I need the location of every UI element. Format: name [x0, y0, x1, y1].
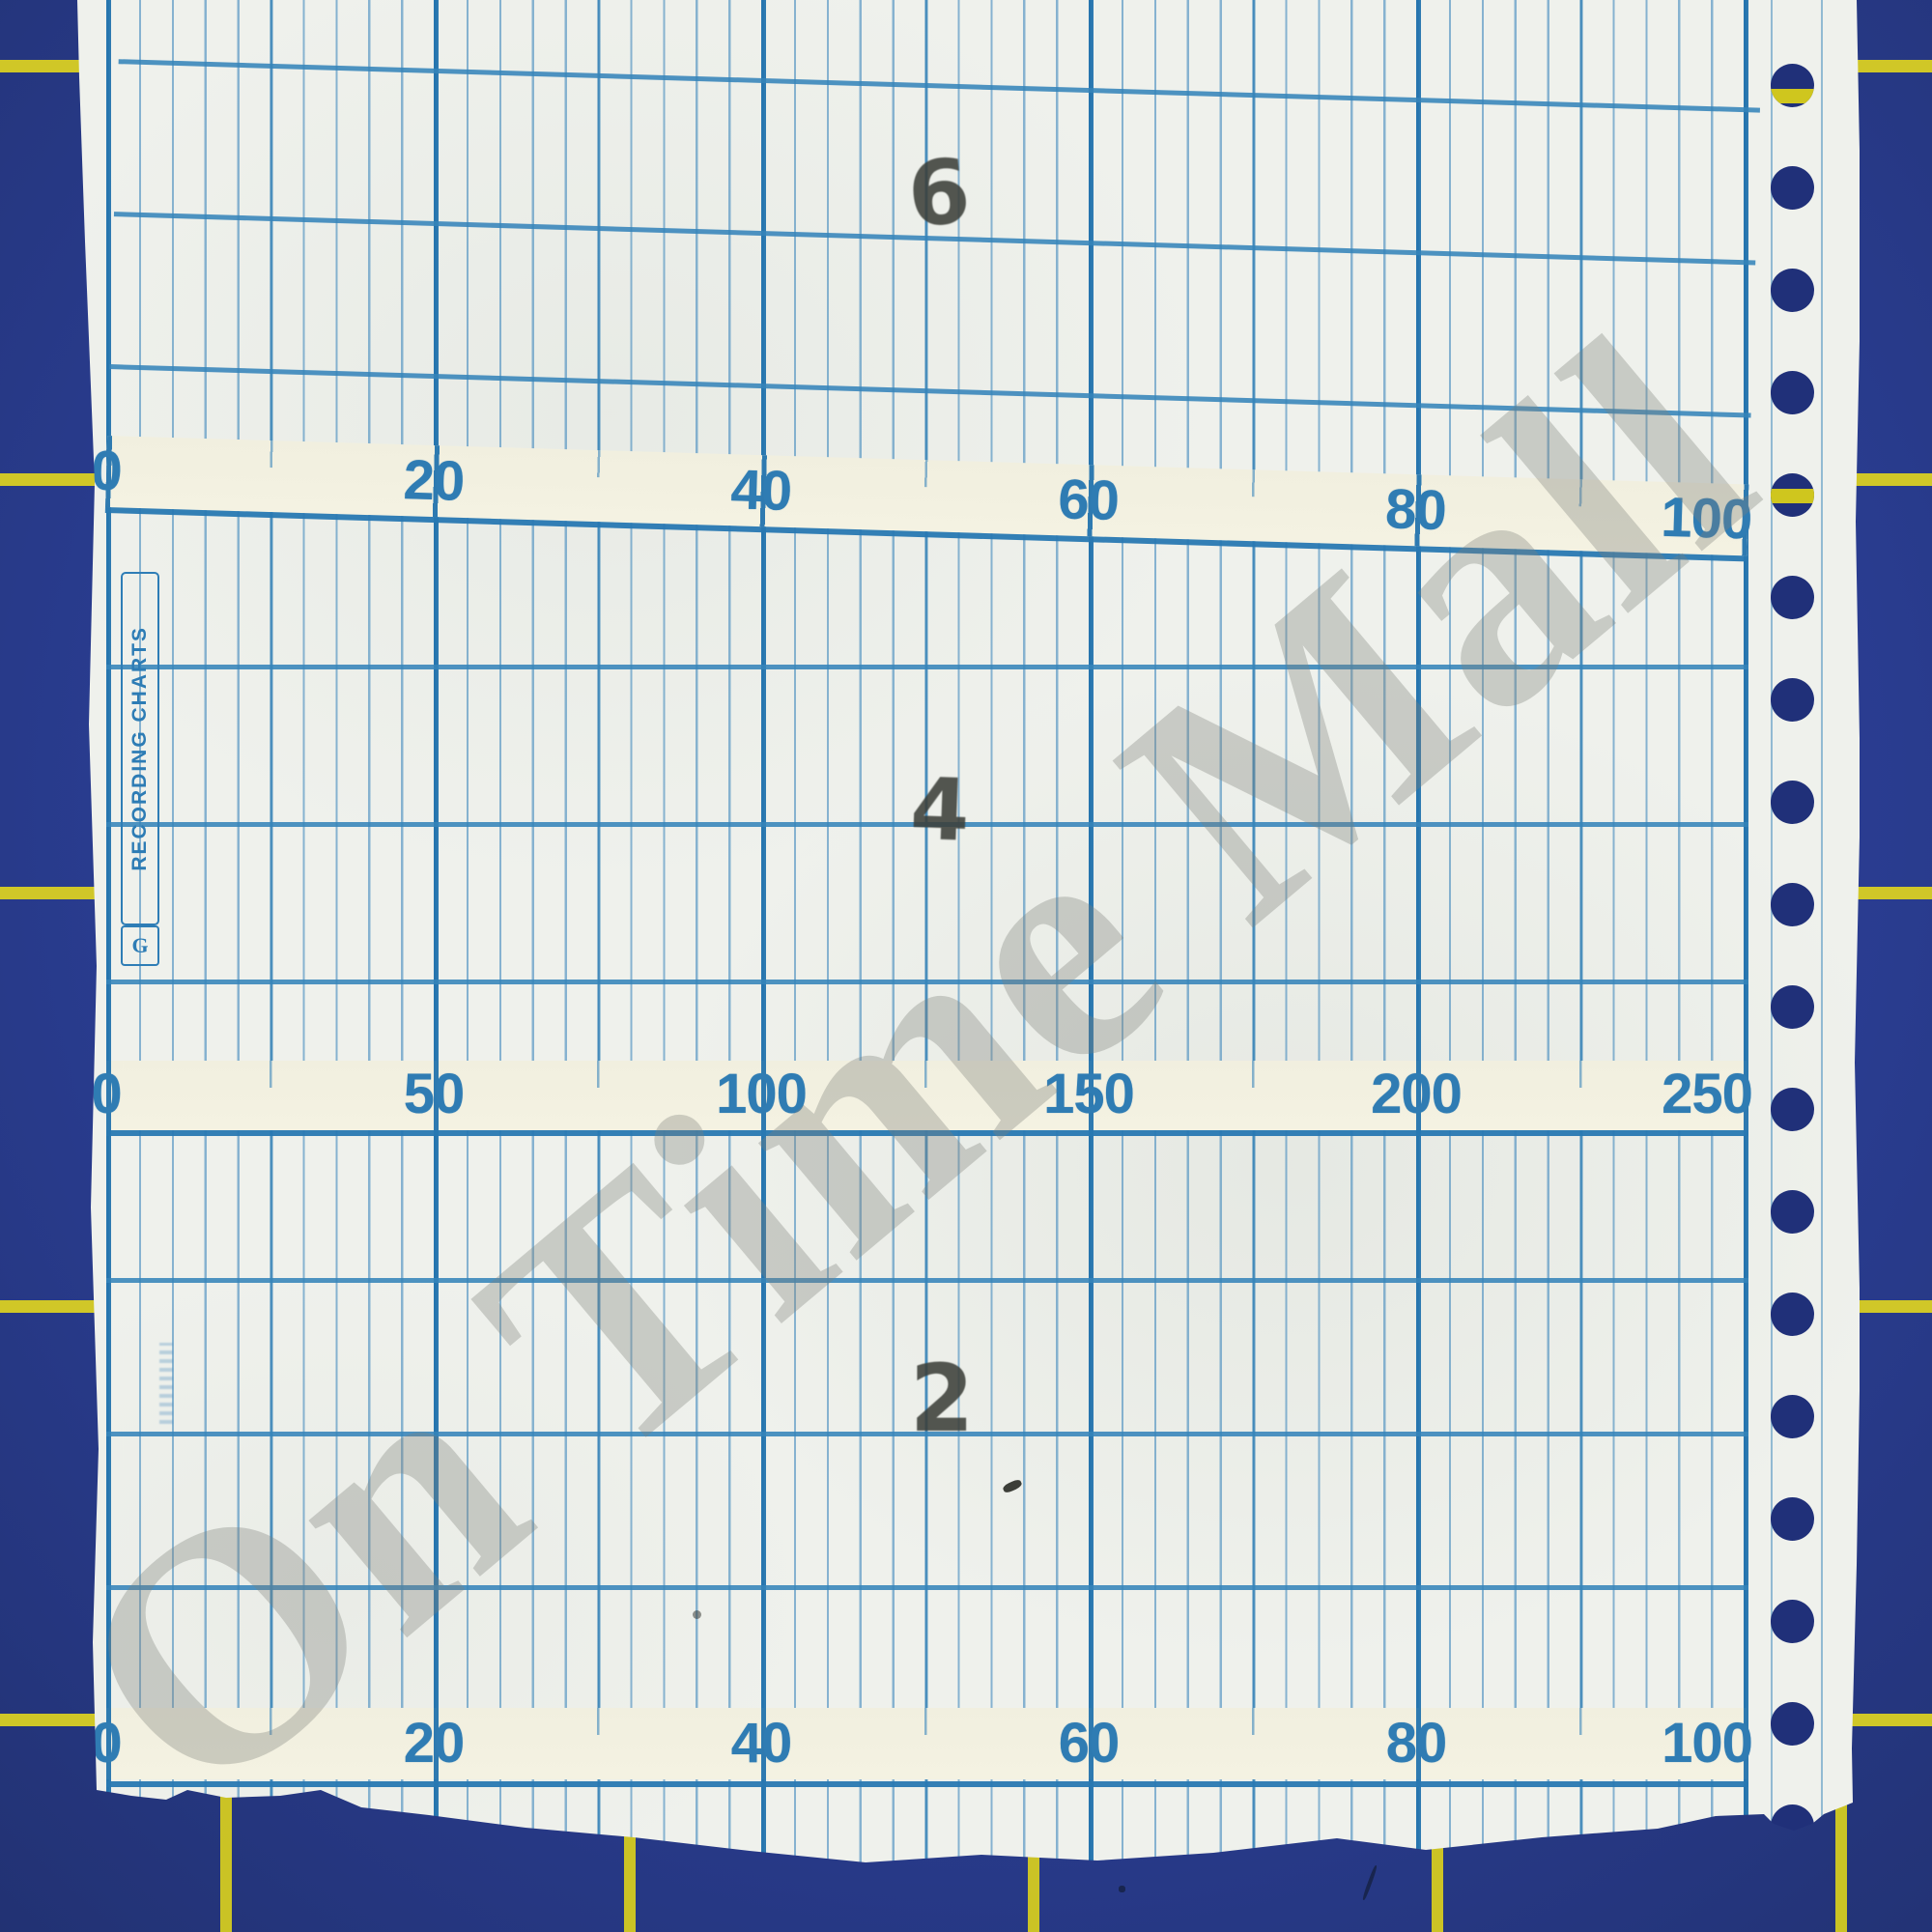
- scale-label: 20: [403, 447, 465, 514]
- page-number-stamp: 2: [910, 1345, 975, 1453]
- margin-smudge: [159, 1343, 173, 1424]
- sprocket-hole: [1771, 166, 1814, 210]
- sprocket-hole: [1771, 371, 1814, 414]
- scale-label: 40: [731, 1711, 792, 1776]
- mat-grid-line-through-hole: [1771, 89, 1814, 103]
- sprocket-hole: [1771, 1293, 1814, 1336]
- sprocket-hole: [1771, 1190, 1814, 1234]
- ink-speck: [693, 1610, 701, 1619]
- chart-grid-horizontal-line: [119, 59, 1760, 112]
- page-number-stamp: 6: [903, 139, 974, 247]
- photo-scene: 0 20 40 60 80 100 0 50 100 150 200 250: [0, 0, 1932, 1932]
- brand-label-box: RECORDING CHARTS: [121, 572, 159, 925]
- sprocket-hole: [1771, 1497, 1814, 1541]
- sprocket-hole: [1771, 781, 1814, 824]
- sprocket-hole: [1771, 1395, 1814, 1438]
- scale-label: 60: [1059, 1711, 1120, 1776]
- sprocket-hole: [1771, 678, 1814, 722]
- scale-label: 60: [1057, 467, 1119, 533]
- sprocket-hole: [1771, 1702, 1814, 1746]
- scale-label: 40: [730, 457, 792, 524]
- sprocket-hole: [1771, 1088, 1814, 1131]
- scale-label: 200: [1371, 1062, 1462, 1126]
- mat-speck: [1362, 1864, 1378, 1900]
- brand-logo: G: [121, 925, 159, 966]
- mat-speck: [1119, 1886, 1125, 1892]
- brand-label: RECORDING CHARTS: [128, 626, 152, 871]
- scale-label: 80: [1386, 1711, 1447, 1776]
- scale-label: 50: [404, 1062, 465, 1126]
- sprocket-hole: [1771, 985, 1814, 1029]
- scale-label: 0: [91, 1062, 121, 1126]
- sprocket-hole: [1771, 269, 1814, 312]
- sprocket-hole: [1771, 1600, 1814, 1643]
- scale-label: 100: [1662, 1711, 1752, 1776]
- scale-label: 250: [1662, 1062, 1752, 1126]
- sprocket-hole: [1771, 64, 1814, 107]
- scale-label: 0: [90, 439, 122, 504]
- sprocket-hole: [1771, 883, 1814, 926]
